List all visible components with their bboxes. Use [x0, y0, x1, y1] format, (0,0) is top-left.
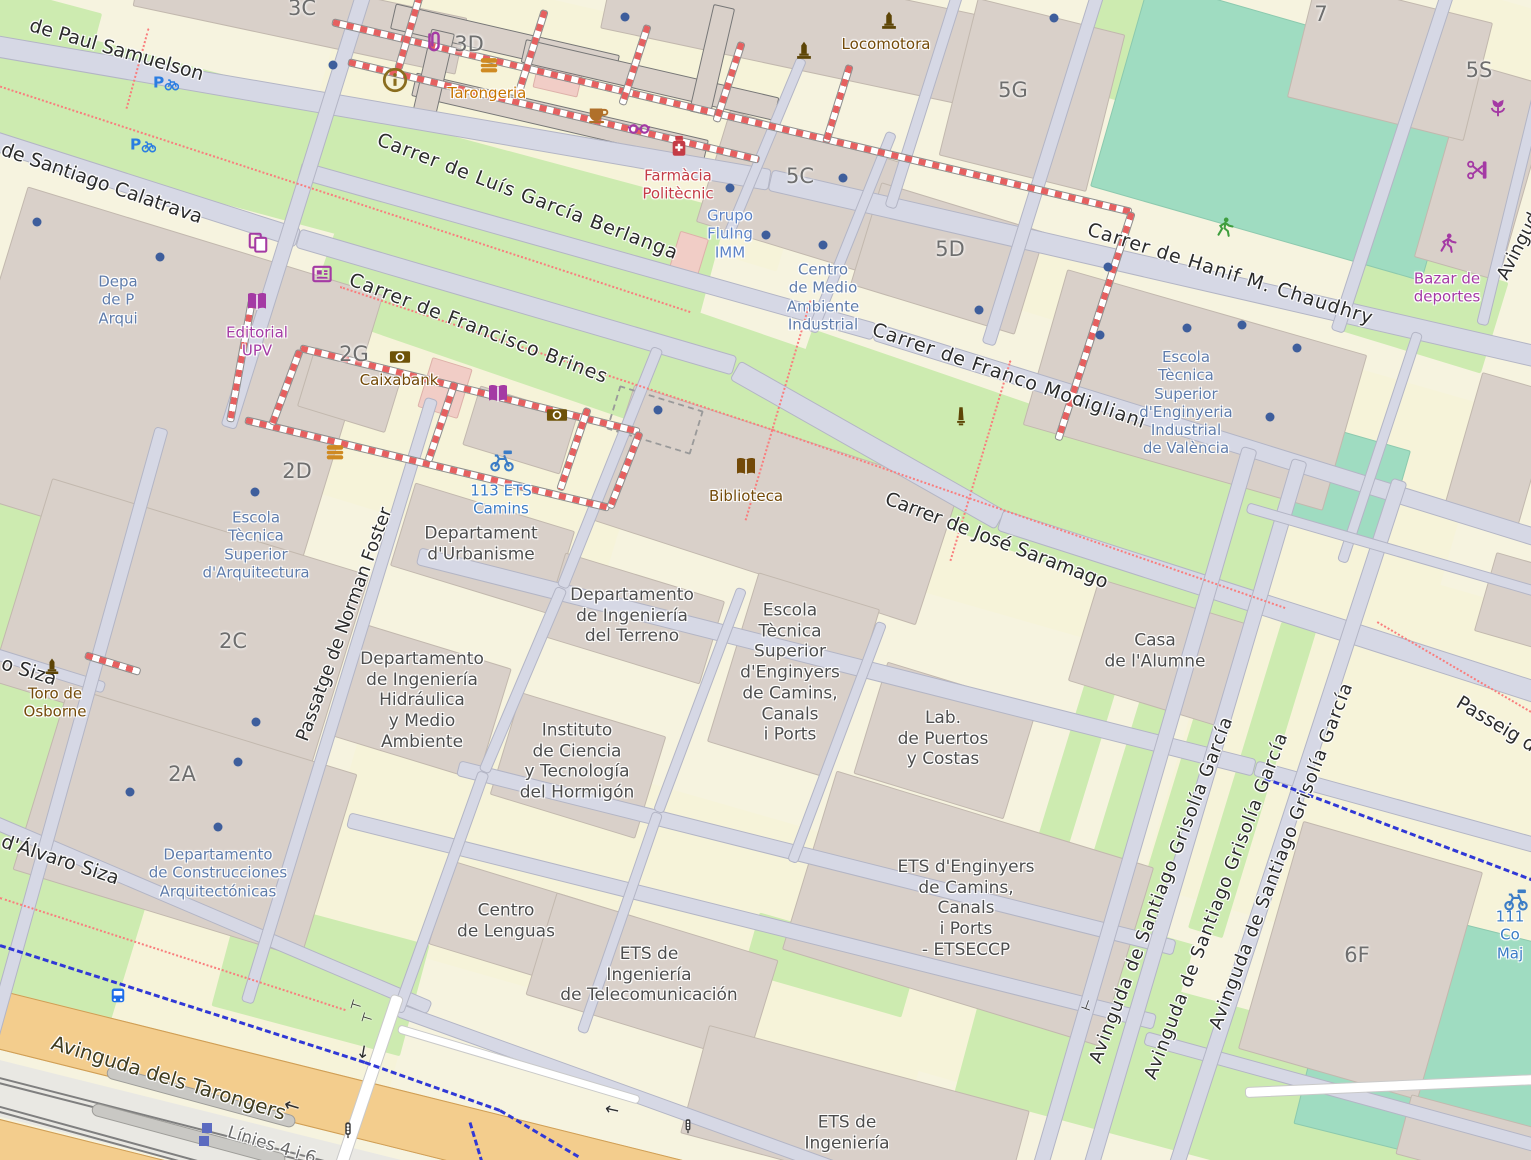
- burger-icon: [324, 441, 346, 463]
- burger-icon: [478, 54, 500, 76]
- monument-icon: [793, 39, 815, 61]
- poi-label-centro-lenguas: Centrode Lenguas: [457, 900, 555, 941]
- poi-label-escola-arquitectura: EscolaTècnicaSuperiord'Arquitectura: [202, 508, 309, 581]
- newspaper-icon: [311, 263, 334, 286]
- info-icon: [382, 67, 408, 93]
- poi-label-construcciones-arq: Departamentode ConstruccionesArquitectón…: [149, 846, 287, 901]
- traffic-light-icon: [339, 1121, 357, 1139]
- poi-label-casa-alumne: Casade l'Alumne: [1105, 630, 1206, 671]
- block-label-5C: 5C: [786, 164, 814, 188]
- tree-dot: [329, 61, 338, 70]
- tree-dot: [726, 184, 735, 193]
- poi-label-caixabank: Caixabank: [360, 371, 439, 389]
- poi-label-tarongeria: Tarongeria: [448, 84, 527, 102]
- block-label-3C: 3C: [288, 0, 316, 20]
- block-label-6F: 6F: [1344, 943, 1369, 967]
- poi-label-ing-terreno: Departamentode Ingenieríadel Terreno: [570, 585, 694, 647]
- book-icon: [486, 382, 510, 406]
- poi-label-locomotora: Locomotora: [842, 35, 931, 53]
- poi-label-farmacia-politecnic: FarmàciaPolitècnic: [642, 167, 713, 204]
- poi-label-lab-puertos: Lab.de Puertosy Costas: [898, 708, 989, 770]
- block-label-2D: 2D: [282, 459, 312, 483]
- book-icon: [245, 290, 269, 314]
- map-area: [1474, 552, 1531, 648]
- flower-icon: [1487, 97, 1509, 119]
- poi-label-grupo-fluing-imm: GrupoFluIngIMM: [707, 207, 753, 262]
- tree-dot: [1293, 344, 1302, 353]
- bike-rental-icon: [1504, 888, 1528, 912]
- traffic-light-icon: [680, 1118, 696, 1134]
- runner-icon: [1213, 216, 1235, 238]
- tree-dot: [252, 718, 261, 727]
- tree-dot: [975, 306, 984, 315]
- poi-label-hormigon: Institutode Cienciay Tecnologíadel Hormi…: [520, 721, 635, 804]
- tree-dot: [654, 406, 663, 415]
- poi-label-ing-hidraulica: Departamentode IngenieríaHidráulicay Med…: [360, 649, 484, 753]
- block-label-2G: 2G: [339, 342, 369, 366]
- tree-dot: [234, 758, 243, 767]
- coffee-icon: [587, 103, 609, 125]
- tree-dot: [214, 823, 223, 832]
- tree-dot: [762, 231, 771, 240]
- block-label-7: 7: [1314, 2, 1327, 26]
- block-label-2C: 2C: [219, 629, 247, 653]
- svg-text:P: P: [153, 73, 164, 91]
- poi-label-ets-telecom: ETS deIngenieríade Telecomunicación: [560, 944, 737, 1006]
- bike-rental-icon: [490, 449, 514, 473]
- tree-dot: [1050, 14, 1059, 23]
- bike-parking-icon: P: [130, 131, 156, 157]
- tree-dot: [621, 13, 630, 22]
- poi-label-centro-medio-ambiente: Centrode MedioAmbienteIndustrial: [787, 260, 859, 333]
- hairdresser-icon: [1466, 159, 1489, 182]
- tree-dot: [1238, 321, 1247, 330]
- poi-label-escola-industrial: EscolaTècnicaSuperiord'EnginyeriaIndustr…: [1139, 348, 1232, 458]
- tree-dot: [819, 241, 828, 250]
- glasses-icon: [628, 118, 651, 141]
- paperclip-icon: [421, 29, 447, 55]
- tree-dot: [156, 253, 165, 262]
- map-canvas[interactable]: de Paul Samuelsonde Santiago CalatravaCa…: [0, 0, 1531, 1160]
- poi-label-toro-osborne: Toro deOsborne: [24, 685, 87, 722]
- bank-icon: [546, 404, 569, 427]
- tree-dot: [839, 174, 848, 183]
- poi-label-ets-ingenieria: ETS deIngeniería: [804, 1112, 889, 1153]
- book-icon: [734, 455, 758, 479]
- obelisk-icon: [950, 405, 972, 427]
- block-label-5D: 5D: [935, 237, 965, 261]
- tree-dot: [1096, 331, 1105, 340]
- copyshop-icon: [247, 231, 269, 253]
- tree-dot: [251, 488, 260, 497]
- pharmacy-icon: [668, 135, 691, 158]
- poi-label-comajoan-111: 111 CoMaj: [1496, 908, 1525, 963]
- block-label-5S: 5S: [1466, 58, 1493, 82]
- road-segment: [397, 1024, 642, 1105]
- poi-label-biblioteca: Biblioteca: [709, 487, 783, 505]
- bus-stop-icon: [108, 986, 128, 1006]
- poi-label-urbanisme: Departamentd'Urbanisme: [424, 523, 537, 564]
- svg-text:P: P: [130, 135, 141, 153]
- tree-dot: [33, 218, 42, 227]
- tree-dot: [1266, 413, 1275, 422]
- poi-label-escola-camins: EscolaTècnicaSuperiord'Enginyersde Camin…: [740, 600, 840, 745]
- block-label-5G: 5G: [998, 78, 1028, 102]
- monument-icon: [878, 9, 900, 31]
- bike-parking-icon: P: [153, 69, 179, 95]
- poi-label-ets-camins-113: 113 ETSCamins: [470, 482, 532, 519]
- tram-station-marker: [202, 1123, 212, 1133]
- block-label-3D: 3D: [454, 32, 484, 56]
- monument-icon: [42, 656, 62, 676]
- poi-label-depa-arqui: Depade PArqui: [98, 273, 138, 328]
- tree-dot: [126, 788, 135, 797]
- poi-label-etseccp: ETS d'Enginyersde Camins,Canalsi Ports- …: [898, 857, 1035, 961]
- poi-label-editorial-upv: EditorialUPV: [226, 324, 288, 361]
- tram-station-marker: [199, 1136, 209, 1146]
- bank-icon: [389, 346, 412, 369]
- block-label-2A: 2A: [168, 762, 196, 786]
- tree-dot: [1183, 324, 1192, 333]
- poi-label-bazar-de-deportes: Bazar dedeportes: [1414, 270, 1481, 307]
- oneway-arrow-left: ←: [603, 1099, 621, 1122]
- tree-dot: [1104, 263, 1113, 272]
- runner-icon: [1436, 232, 1458, 254]
